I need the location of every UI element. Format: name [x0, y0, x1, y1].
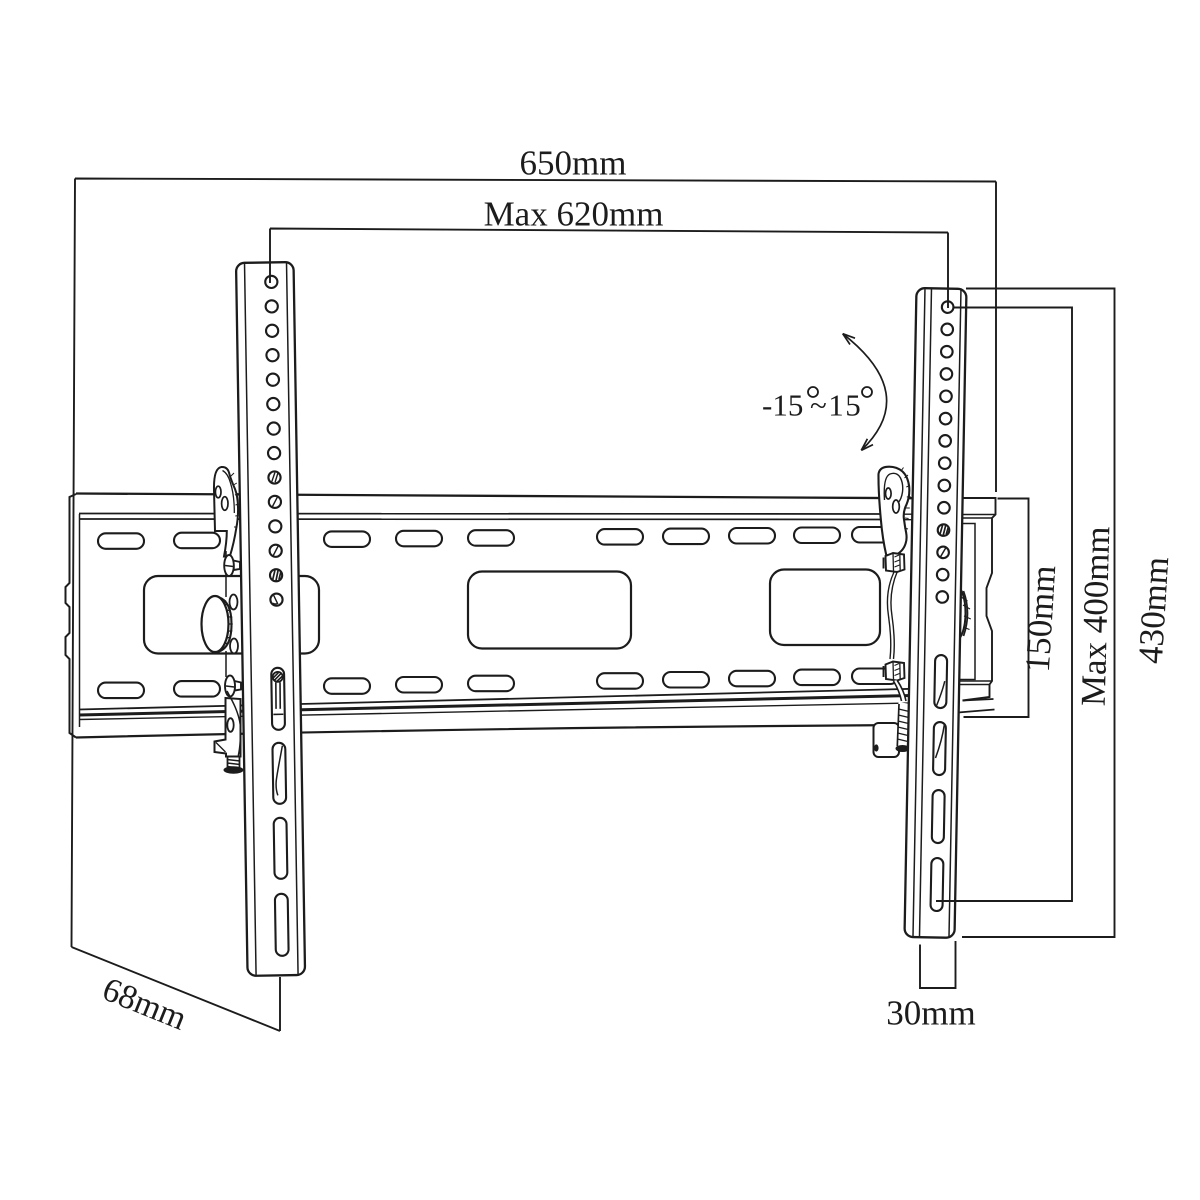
svg-text:650mm: 650mm	[520, 144, 627, 183]
svg-text:430mm: 430mm	[1131, 556, 1176, 665]
svg-text:-15: -15	[762, 388, 803, 423]
svg-text:Max 400mm: Max 400mm	[1074, 526, 1118, 707]
svg-text:Max 620mm: Max 620mm	[484, 195, 664, 234]
svg-text:150mm: 150mm	[1018, 564, 1063, 673]
svg-text:30mm: 30mm	[886, 994, 975, 1033]
